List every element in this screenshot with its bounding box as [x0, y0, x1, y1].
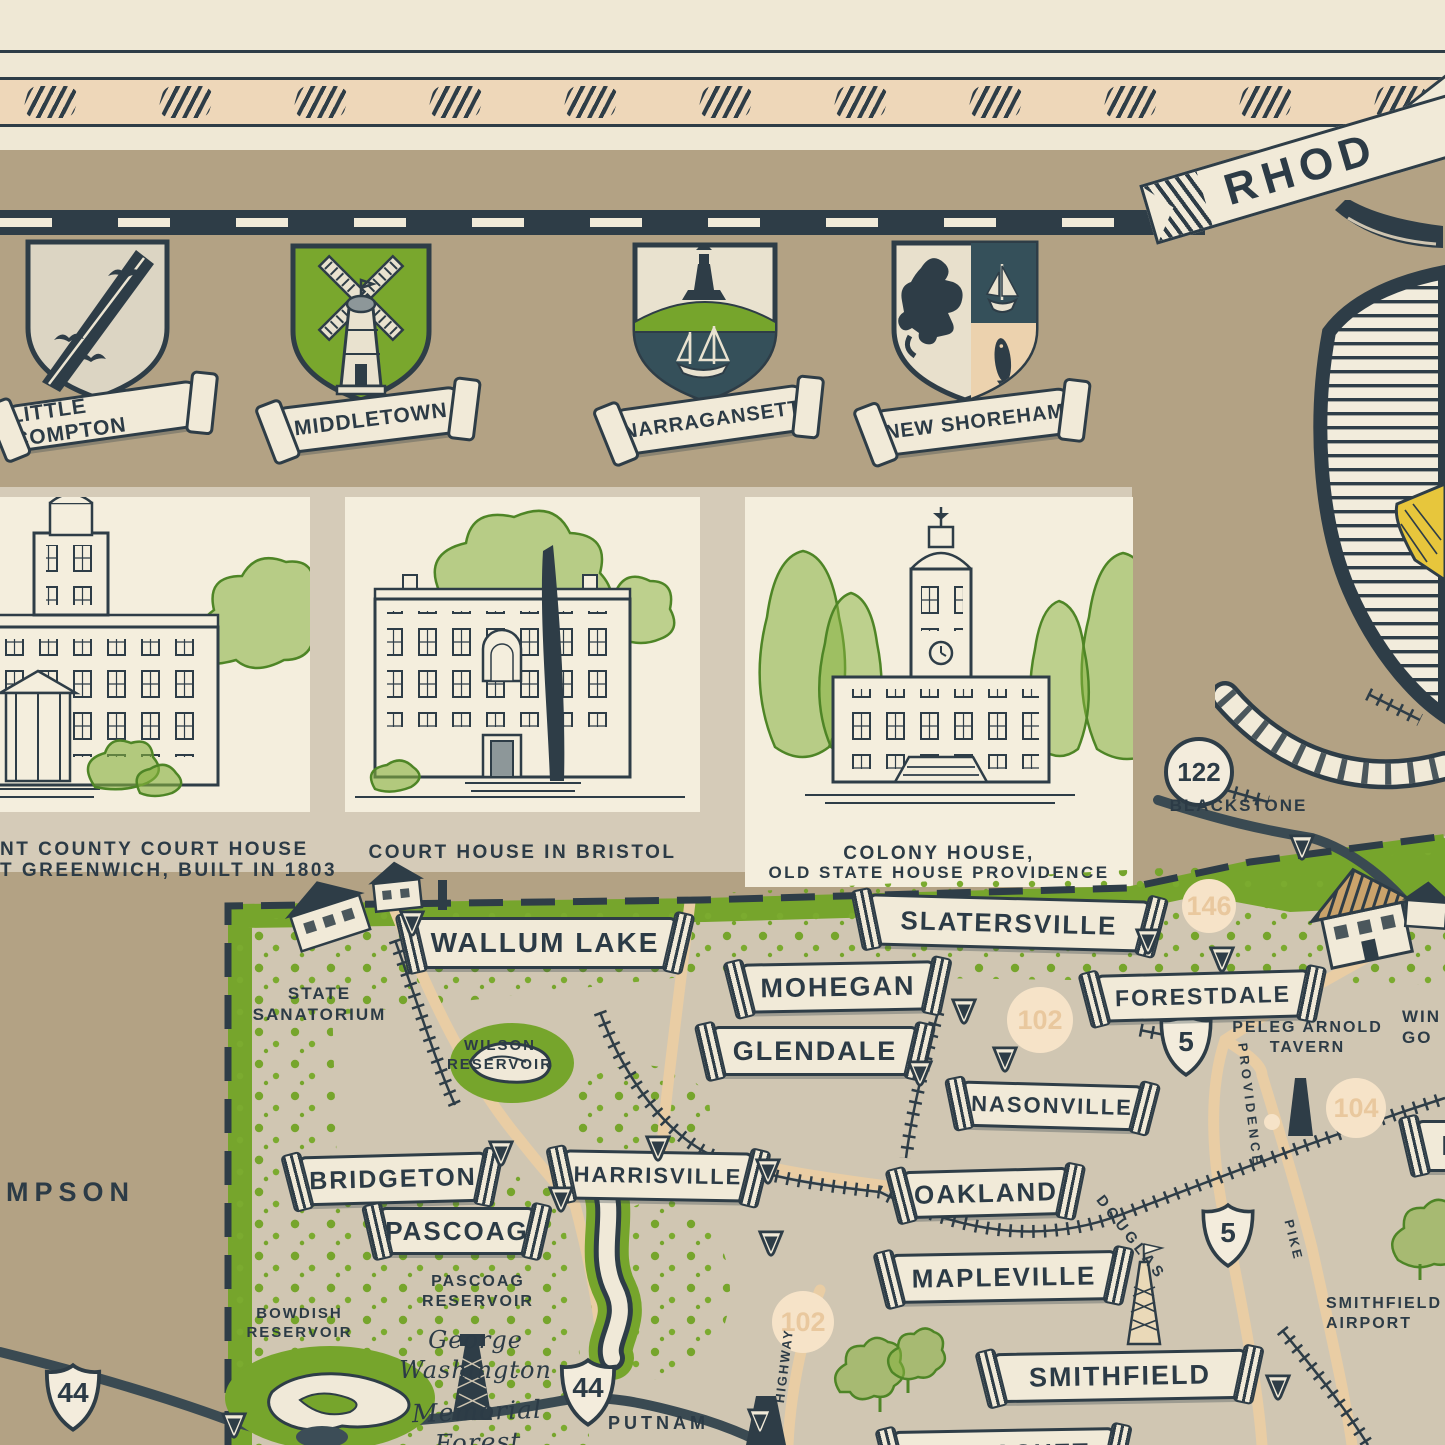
- town-label: FORESTDALE: [1115, 980, 1292, 1012]
- route-number: 122: [1177, 757, 1220, 788]
- town-marker: [1288, 832, 1316, 864]
- route-number: 5: [1157, 1026, 1215, 1058]
- town-marker: [220, 1410, 248, 1442]
- label-wilson-reservoir: WILSON RESERVOIR: [420, 1037, 580, 1075]
- town-marker: [644, 1133, 672, 1165]
- town-label: WALLUM LAKE: [431, 927, 660, 959]
- town-banner-smithfield: SMITHFIELD: [993, 1349, 1248, 1403]
- town-marker: [754, 1156, 782, 1188]
- town-marker: [547, 1184, 575, 1216]
- route-number: 146: [1186, 891, 1231, 922]
- town-marker: [398, 908, 426, 940]
- town-marker: [487, 1138, 515, 1170]
- town-label: MOHEGAN: [760, 970, 916, 1004]
- us-route-shield-5-north: 5: [1157, 1011, 1215, 1079]
- town-label: SLATERSVILLE: [900, 905, 1118, 942]
- town-marker: [1208, 944, 1236, 976]
- map-dot: [1264, 1114, 1280, 1130]
- town-marker: [746, 1406, 774, 1438]
- route-number: 104: [1333, 1093, 1378, 1124]
- town-banner-pascoag: PASCOAG: [379, 1207, 535, 1255]
- label-pascoag-reservoir: PASCOAG RESERVOIR: [393, 1272, 563, 1312]
- town-banner-nasonville: NASONVILLE: [960, 1081, 1143, 1132]
- town-label: BRIDGETON: [309, 1162, 477, 1195]
- town-label: OAKLAND: [914, 1176, 1059, 1211]
- route-number: 102: [1017, 1005, 1062, 1036]
- label-win-go-partial: WIN GO: [1402, 1006, 1445, 1049]
- town-marker: [757, 1228, 785, 1260]
- label-george-washington: George Washington: [398, 1325, 553, 1385]
- label-smithfield-airport: SMITHFIELD AIRPORT: [1326, 1294, 1445, 1334]
- rhode-island-pictorial-map: LITTLE COMPTON MIDDLETOWN: [0, 0, 1445, 1445]
- label-state-sanatorium: STATE SANATORIUM: [222, 983, 417, 1026]
- label-memorial-forest: Memorial Forest: [369, 1392, 586, 1445]
- label-blackstone: BLACKSTONE: [1156, 795, 1321, 816]
- town-label: MAPLEVILLE: [911, 1260, 1096, 1294]
- us-route-shield-5-south: 5: [1199, 1202, 1257, 1270]
- town-label: NASONVILLE: [971, 1091, 1133, 1121]
- route-badge-146: 146: [1182, 879, 1236, 933]
- town-label: GLENDALE: [733, 1036, 898, 1067]
- town-label: SMITHFIELD: [1029, 1359, 1212, 1393]
- town-banner-oakland: OAKLAND: [902, 1167, 1069, 1219]
- route-badge-104: 104: [1326, 1078, 1386, 1138]
- town-marker: [950, 996, 978, 1028]
- label-bowdish-reservoir: BOWDISH RESERVOIR: [222, 1305, 377, 1343]
- town-marker: [906, 1058, 934, 1090]
- town-label: CHEPACHET: [918, 1438, 1090, 1445]
- town-marker: [991, 1044, 1019, 1076]
- label-putnam: PUTNAM: [608, 1412, 709, 1435]
- route-number: 44: [42, 1377, 104, 1409]
- town-marker: [1264, 1372, 1292, 1404]
- route-number: 5: [1199, 1217, 1257, 1249]
- town-banner-forestdale: FORESTDALE: [1095, 969, 1310, 1023]
- us-route-shield-44-west: 44: [42, 1362, 104, 1434]
- town-banner-wallum-lake: WALLUM LAKE: [413, 917, 677, 969]
- town-label: PASCOAG: [385, 1216, 529, 1247]
- town-banner-chepachet-partial: CHEPACHET: [893, 1427, 1116, 1445]
- label-thompson-partial: MPSON: [6, 1176, 135, 1210]
- town-banner-mohegan: MOHEGAN: [741, 960, 936, 1013]
- town-label: M: [1441, 1130, 1445, 1162]
- town-banner-partial-right: M: [1416, 1120, 1445, 1172]
- town-banner-bridgeton: BRIDGETON: [298, 1152, 487, 1207]
- town-marker: [1134, 926, 1162, 958]
- town-label: HARRISVILLE: [573, 1162, 742, 1191]
- town-banner-mapleville: MAPLEVILLE: [891, 1250, 1118, 1304]
- town-banner-glendale: GLENDALE: [712, 1026, 918, 1076]
- town-banner-slatersville: SLATERSVILLE: [867, 893, 1150, 952]
